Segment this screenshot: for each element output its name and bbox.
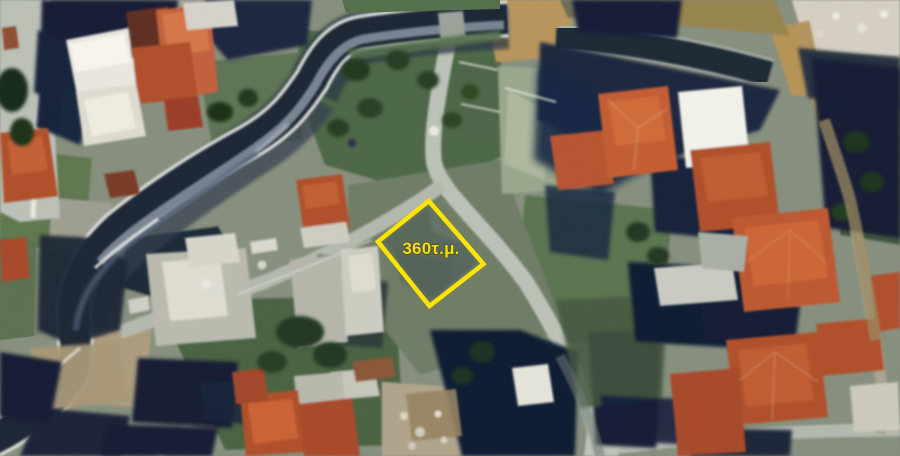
svg-text:360τ.μ.: 360τ.μ.	[402, 239, 459, 258]
